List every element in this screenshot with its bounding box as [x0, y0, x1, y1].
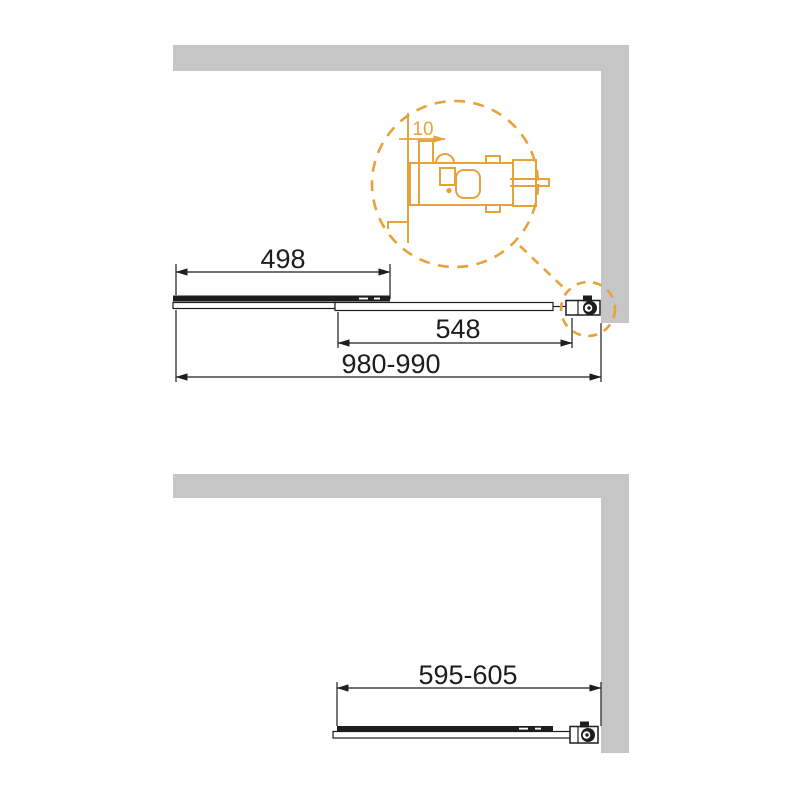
- screen-assembly-top: [173, 296, 600, 316]
- wall-section-top-view: [173, 45, 629, 323]
- screen-assembly-plan: [333, 722, 598, 744]
- dimension-fixed-panel: 498: [176, 244, 390, 299]
- detail-top-tab: [486, 156, 500, 163]
- dimension-label-980-990: 980-990: [341, 349, 440, 379]
- fixed-glass-panel: [173, 296, 390, 302]
- detail-drawing: 10: [388, 113, 549, 243]
- bottom-rail-plan: [333, 732, 572, 739]
- detail-carriage-block: [440, 168, 455, 185]
- bracket-lug: [580, 722, 589, 728]
- detail-dim-label-10: 10: [412, 119, 433, 140]
- detail-axle-dot: [446, 188, 451, 193]
- detail-leader-line: [520, 246, 566, 290]
- sliding-panel-rail: [335, 303, 553, 311]
- detail-right-block: [513, 160, 536, 206]
- dimension-label-595-605: 595-605: [418, 660, 517, 690]
- wall-bracket-roller-top: [566, 296, 600, 316]
- detail-roller-dome: [436, 154, 454, 163]
- top-view: 498 548 980-990: [173, 45, 629, 382]
- bracket-lug: [583, 296, 592, 302]
- dimension-total-width-plan: 595-605: [337, 660, 601, 726]
- dimension-label-548: 548: [435, 314, 480, 344]
- detail-wall-profile: [419, 141, 433, 163]
- detail-profile-body: [410, 163, 513, 205]
- dimension-total-width-top: 980-990: [176, 310, 601, 382]
- plan-view: 595-605: [173, 474, 629, 753]
- detail-bottom-tab: [486, 205, 500, 212]
- dimension-drawing: 498 548 980-990: [0, 0, 800, 800]
- wall-bracket-roller-plan: [570, 722, 598, 744]
- drawing-canvas: 498 548 980-990: [0, 0, 800, 800]
- dimension-label-498: 498: [260, 244, 305, 274]
- wall-section-plan-view: [173, 474, 629, 753]
- bottom-rail-fixed: [173, 303, 335, 309]
- detail-roller-housing: [456, 170, 480, 198]
- detail-arm-profile: [510, 179, 549, 186]
- detail-wall-foot: [388, 222, 408, 229]
- dimension-sliding-panel: 548: [338, 312, 572, 348]
